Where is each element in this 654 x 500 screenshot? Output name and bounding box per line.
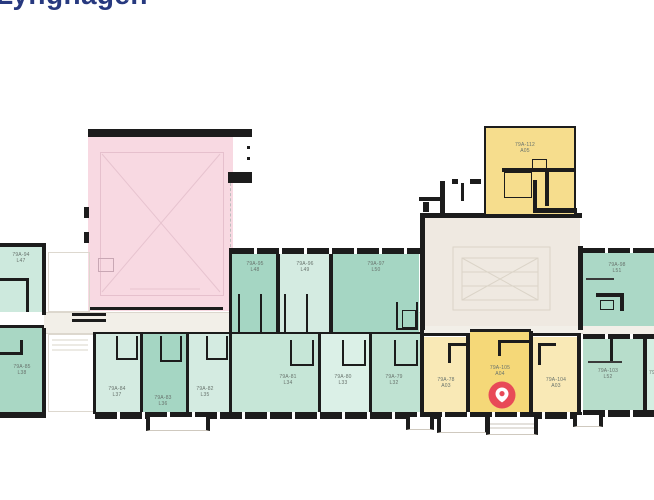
wall — [533, 333, 579, 336]
wall — [538, 343, 541, 365]
hall-inner-box — [98, 258, 114, 272]
entrance-wall — [452, 179, 458, 184]
hall-bottom-wall — [90, 307, 223, 310]
wall — [498, 340, 530, 343]
wall — [0, 278, 28, 281]
corridor-door — [72, 319, 106, 322]
wall — [26, 278, 29, 312]
wall — [88, 129, 252, 137]
wall — [84, 232, 89, 243]
room-label: 79A-97 L50 — [367, 261, 384, 273]
room-label: 79 — [647, 370, 654, 376]
room-label: 79A-112 A05 — [515, 142, 535, 154]
bathroom — [206, 336, 228, 360]
exterior-stub — [146, 417, 210, 431]
wall — [42, 243, 46, 315]
wall — [0, 352, 22, 355]
wall — [228, 172, 252, 183]
page-title: Lynghagen — [0, 0, 148, 9]
location-pin-icon[interactable] — [488, 381, 516, 409]
exterior-stub — [437, 417, 489, 433]
wall — [610, 339, 613, 363]
bathroom-fixture — [600, 300, 614, 310]
bathroom-fixture — [402, 310, 416, 328]
room-label: 79A-94 L47 — [12, 252, 29, 264]
bathroom — [284, 294, 308, 332]
wall — [620, 297, 624, 311]
room-label: 79A-85 L38 — [13, 364, 30, 376]
bathroom — [342, 340, 366, 366]
wall — [20, 340, 23, 355]
room-label: 79A-80 L33 — [334, 374, 351, 386]
bathroom — [160, 336, 182, 362]
bathroom — [238, 294, 262, 332]
utility-room-outline — [48, 334, 94, 412]
exterior-stub — [573, 415, 603, 427]
wall — [448, 343, 451, 363]
dashed-boundary — [230, 183, 231, 247]
bathroom — [116, 336, 138, 360]
bathroom — [290, 340, 314, 366]
room-label: 79A-98 L51 — [608, 262, 625, 274]
wall-dot — [247, 157, 250, 160]
wall — [0, 412, 46, 418]
room-79A-78[interactable] — [424, 337, 468, 413]
exterior-terrace — [486, 417, 538, 435]
inner-partition — [588, 361, 622, 363]
wall — [420, 213, 425, 330]
wall — [533, 180, 537, 210]
utility-room-outline — [48, 252, 90, 312]
bathroom — [394, 340, 418, 366]
wall — [84, 207, 89, 218]
room-label: 79A-104 A03 — [546, 377, 566, 389]
entrance-wall — [461, 183, 464, 201]
room-label: 79A-78 A03 — [437, 377, 454, 389]
wall — [545, 172, 549, 206]
room-label: 79A-82 L35 — [196, 386, 213, 398]
bathroom-fixture — [504, 172, 532, 198]
entrance-wall — [419, 197, 441, 201]
room-label: 79A-84 L37 — [108, 386, 125, 398]
exterior-stub — [406, 417, 434, 430]
wall — [0, 325, 44, 328]
room-label: 79A-95 L48 — [246, 261, 263, 273]
wall-dot — [247, 146, 250, 149]
room-label: 79A-103 L52 — [598, 368, 618, 380]
bathroom-fixture — [532, 159, 547, 169]
wall — [577, 333, 581, 415]
floorplan-canvas: Lynghagen 79A-94 L47 79A-85 L38 — [0, 0, 654, 500]
wall — [0, 243, 44, 247]
hall-inner-outline — [100, 152, 224, 296]
wall — [424, 333, 468, 336]
stairwell-block — [425, 218, 580, 326]
wall — [533, 208, 577, 213]
wall — [42, 328, 46, 414]
room-label: 79A-105 A04 — [490, 365, 510, 377]
inner-partition — [586, 278, 614, 280]
room-label: 79A-83 L36 — [154, 395, 171, 407]
room-label: 79A-79 L32 — [385, 374, 402, 386]
room-label: 79A-81 L34 — [279, 374, 296, 386]
room-label: 79A-96 L49 — [296, 261, 313, 273]
wall — [498, 340, 501, 356]
entrance-wall — [423, 202, 429, 212]
corridor-door — [72, 313, 106, 316]
wall — [470, 329, 531, 332]
entrance-wall — [470, 179, 481, 184]
